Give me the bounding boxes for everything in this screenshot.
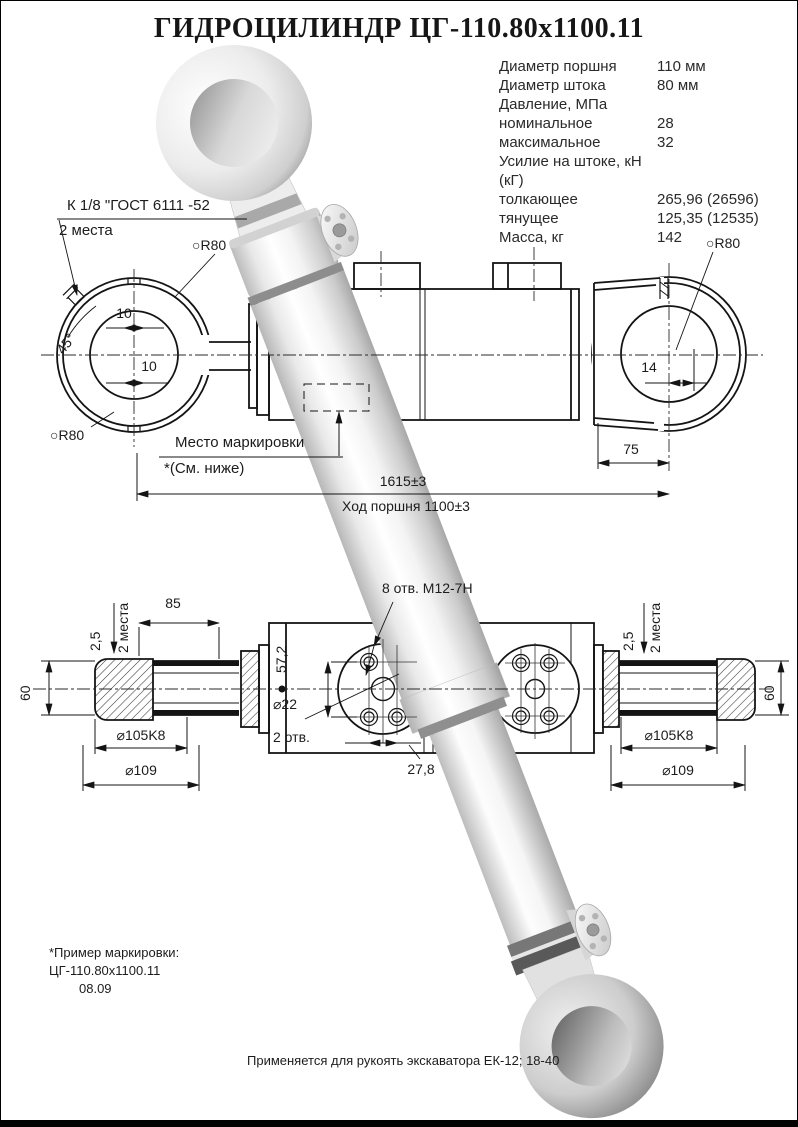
spec-row: толкающее265,96 (26596) <box>499 190 791 209</box>
spec-row: Диаметр поршня110 мм <box>499 57 791 76</box>
dim-10-upper: 10 <box>104 305 144 321</box>
radius-r80-right: ○R80 <box>706 235 740 251</box>
sheet-bottom-border <box>1 1120 798 1127</box>
drawing-sheet: ГИДРОЦИЛИНДР ЦГ-110.80х1100.11 Диаметр п… <box>0 0 798 1127</box>
spec-row: Диаметр штока80 мм <box>499 76 791 95</box>
two-places-left: 2 места <box>115 603 131 653</box>
dim-85: 85 <box>153 595 193 611</box>
dia-22: ⌀22 <box>273 696 297 713</box>
dim-overall-length: 1615±3 <box>371 473 435 489</box>
holes-8-note: 8 отв. М12-7Н <box>382 580 473 596</box>
dim-75: 75 <box>611 441 651 457</box>
spec-row: Давление, МПа <box>499 95 791 114</box>
port-thread-note: К 1/8 "ГОСТ 6111 -52 <box>67 197 210 214</box>
see-below-note: *(См. ниже) <box>164 460 244 477</box>
dim-2-5-right: 2,5 <box>620 632 636 651</box>
radius-r80-top-left: ○R80 <box>192 237 226 253</box>
spec-row: Масса, кг142 <box>499 228 791 247</box>
marking-example-value: ЦГ-110.80х1100.11 <box>49 963 160 978</box>
spec-row: Усилие на штоке, кН (кГ) <box>499 152 791 190</box>
dim-60-left: 60 <box>17 685 33 701</box>
dim-10-lower: 10 <box>129 358 169 374</box>
dia-105-left: ⌀105K8 <box>106 727 176 744</box>
dim-2-5-left: 2,5 <box>87 632 103 651</box>
dim-57-2: 57,2 <box>273 646 289 673</box>
application-note: Применяется для рукоять экскаватора ЕК-1… <box>247 1053 559 1068</box>
dim-piston-stroke: Ход поршня 1100±3 <box>331 498 481 514</box>
spec-row: максимальное32 <box>499 133 791 152</box>
dim-60-right: 60 <box>761 685 777 701</box>
two-places-note: 2 места <box>59 222 113 239</box>
spec-table: Диаметр поршня110 мм Диаметр штока80 мм … <box>499 57 791 247</box>
marking-example-label: *Пример маркировки: <box>49 945 179 960</box>
dia-109-left: ⌀109 <box>106 762 176 779</box>
dia-109-right: ⌀109 <box>643 762 713 779</box>
spec-row: номинальное28 <box>499 114 791 133</box>
page-title: ГИДРОЦИЛИНДР ЦГ-110.80х1100.11 <box>1 13 797 45</box>
marking-example-date: 08.09 <box>79 981 112 996</box>
spec-row: тянущее125,35 (12535) <box>499 209 791 228</box>
two-places-right: 2 места <box>647 603 663 653</box>
holes-2-note: 2 отв. <box>273 729 310 745</box>
marking-place-note: Место маркировки <box>175 434 304 451</box>
dia-105-right: ⌀105K8 <box>634 727 704 744</box>
dim-14: 14 <box>634 359 664 375</box>
radius-r80-bottom-left: ○R80 <box>50 427 84 443</box>
dim-27-8: 27,8 <box>399 761 443 777</box>
